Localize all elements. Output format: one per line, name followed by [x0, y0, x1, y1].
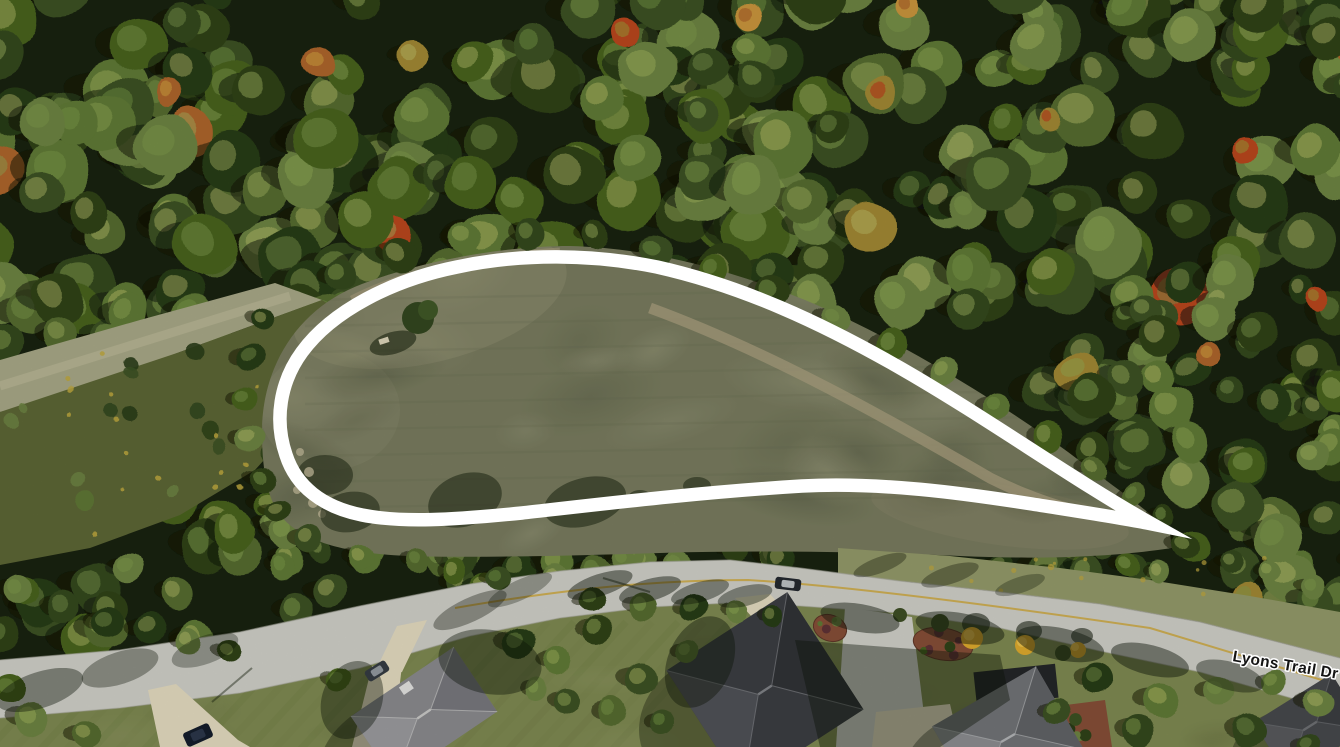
terrain: [0, 0, 1340, 747]
map-canvas[interactable]: Lyons Trail Dr: [0, 0, 1340, 747]
aerial-imagery: Lyons Trail Dr: [0, 0, 1340, 747]
